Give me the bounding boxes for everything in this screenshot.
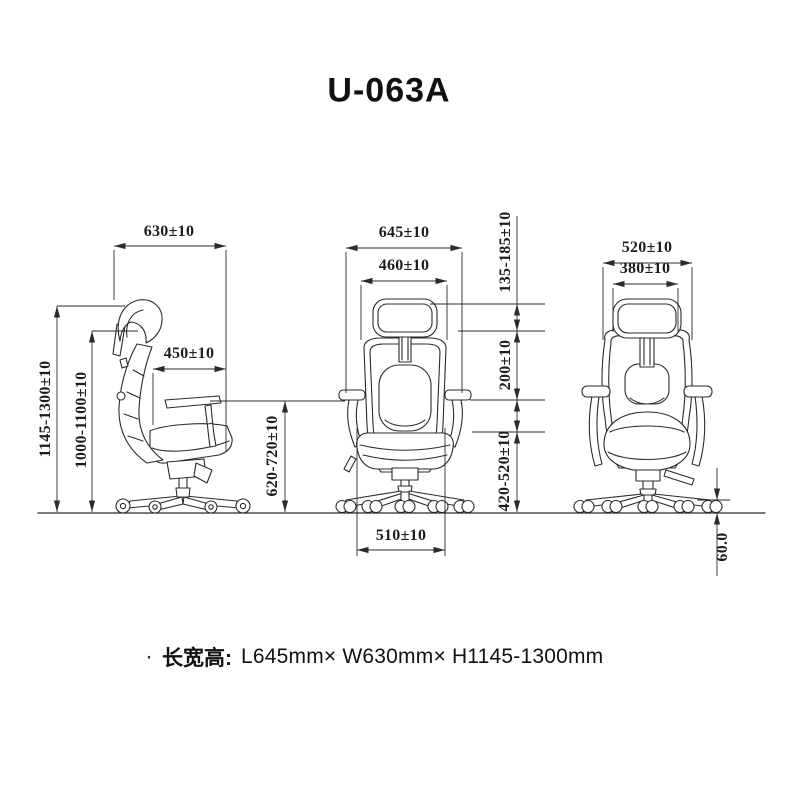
base-front bbox=[574, 494, 722, 513]
side-view-chair bbox=[113, 300, 250, 513]
spec-label: 长宽高: bbox=[162, 642, 232, 672]
mechanism-side bbox=[167, 459, 212, 483]
seat-back bbox=[344, 433, 453, 472]
dim-label-back-seat-width: 510±10 bbox=[376, 527, 427, 545]
dim-label-backrest-span: 200±10 bbox=[497, 340, 515, 391]
dim-label-headrest-adjust: 135-185±10 bbox=[497, 211, 515, 292]
cylinder-side bbox=[176, 478, 190, 497]
dim-label-side-overall-depth: 630±10 bbox=[144, 223, 195, 241]
dim-label-front-shoulder-width: 520±10 bbox=[622, 239, 673, 257]
base-side bbox=[116, 496, 250, 513]
seat-front bbox=[604, 412, 690, 471]
dim-label-armrest-height: 620-720±10 bbox=[264, 415, 282, 496]
spec-bullet: · bbox=[145, 645, 153, 669]
dim-label-back-overall-width: 645±10 bbox=[379, 224, 430, 242]
dim-back-right-chain bbox=[430, 216, 545, 512]
dim-label-seat-height-range: 420-520±10 bbox=[496, 430, 514, 511]
mechanism-back bbox=[392, 468, 418, 494]
size-spec-line: · 长宽高: L645mm× W630mm× H1145-1300mm bbox=[145, 642, 603, 672]
spec-value: L645mm× W630mm× H1145-1300mm bbox=[241, 645, 603, 669]
dim-label-back-backrest-width: 460±10 bbox=[379, 257, 430, 275]
mechanism-front bbox=[636, 470, 694, 497]
dim-label-side-overall-height: 1145-1300±10 bbox=[37, 361, 55, 458]
dim-label-caster-height: 60.0 bbox=[714, 532, 732, 561]
diagram-canvas bbox=[0, 0, 800, 800]
dim-label-front-headrest-width: 380±10 bbox=[620, 260, 671, 278]
front-view-chair bbox=[574, 299, 722, 513]
dim-label-side-seat-depth: 450±10 bbox=[164, 345, 215, 363]
technical-drawing-page: U-063A bbox=[0, 0, 800, 800]
dim-label-side-back-height: 1000-1100±10 bbox=[73, 372, 91, 469]
seat-side bbox=[150, 424, 232, 463]
